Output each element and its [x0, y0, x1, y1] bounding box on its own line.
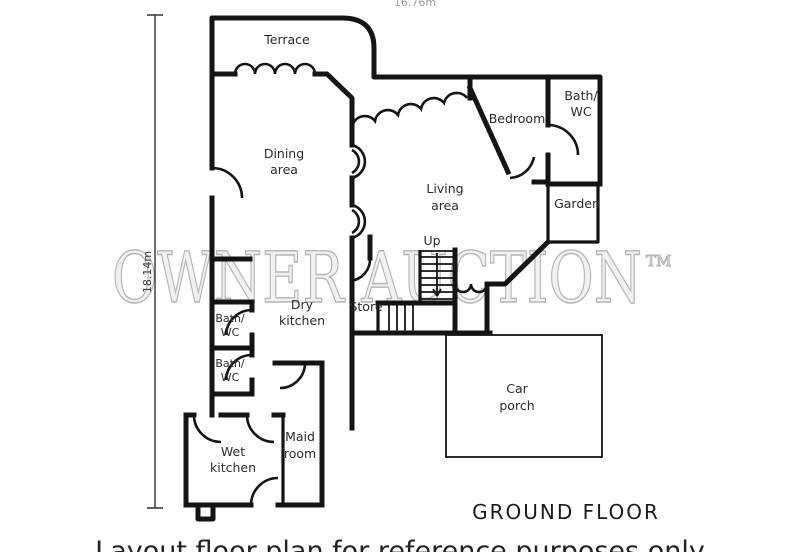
room-label-car-porch-2: porch: [499, 398, 534, 413]
room-label-dining-2: area: [270, 162, 298, 177]
floor-title: GROUND FLOOR: [472, 500, 660, 524]
room-label-bath-upper-1: Bath/: [564, 88, 598, 103]
room-label-wet-kitchen-1: Wet: [221, 444, 245, 459]
room-label-terrace: Terrace: [263, 32, 310, 47]
room-label-dry-kitchen-1: Dry: [291, 297, 314, 312]
room-label-garden: Garden: [554, 196, 600, 211]
room-label-dry-kitchen-2: kitchen: [279, 313, 325, 328]
dimension-left-label: 18.14m: [141, 251, 154, 293]
room-label-bath1-1: Bath/: [215, 312, 245, 325]
room-label-bath2-1: Bath/: [215, 357, 245, 370]
room-label-bath1-2: WC: [221, 326, 240, 339]
caption-text: Layout floor plan for reference purposes…: [95, 536, 705, 552]
floor-plan-page: OWNER AUCTION TM 18.14m 16.76m: [0, 0, 800, 552]
watermark-tm: TM: [646, 252, 671, 270]
room-label-bath2-2: WC: [221, 371, 240, 384]
floor-plan-svg: OWNER AUCTION TM 18.14m 16.76m: [0, 0, 800, 552]
room-label-bath-upper-2: WC: [570, 104, 591, 119]
room-label-maid-2: room: [284, 446, 316, 461]
dimension-top-label: 16.76m: [394, 0, 436, 9]
room-label-living-2: area: [431, 198, 459, 213]
room-label-car-porch-1: Car: [506, 381, 528, 396]
room-label-store: Store: [349, 299, 382, 314]
room-label-up: Up: [423, 233, 440, 248]
room-label-maid-1: Maid: [285, 429, 315, 444]
room-label-bedroom: Bedroom: [489, 111, 546, 126]
room-label-living-1: Living: [426, 181, 463, 196]
room-label-dining-1: Dining: [264, 146, 304, 161]
watermark: OWNER AUCTION TM: [112, 237, 671, 319]
room-label-wet-kitchen-2: kitchen: [210, 460, 256, 475]
